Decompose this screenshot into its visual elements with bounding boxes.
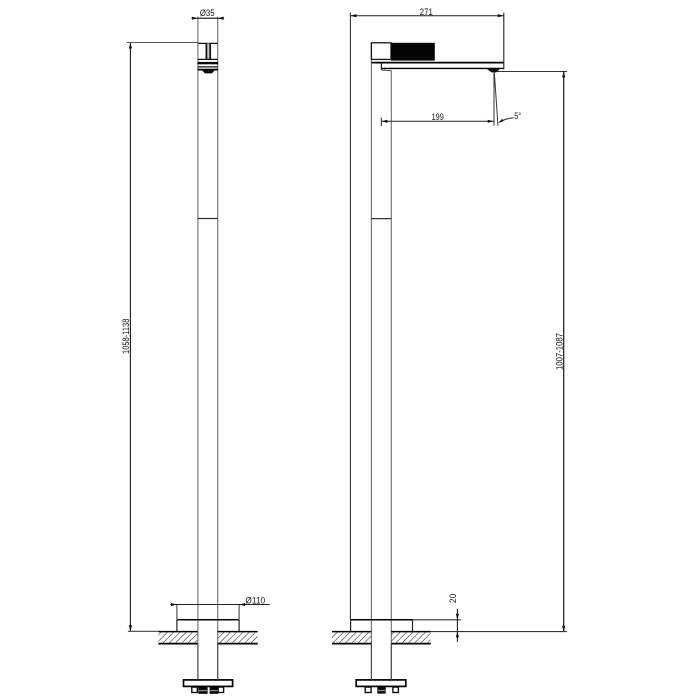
svg-text:199: 199	[432, 112, 444, 122]
svg-text:Ø110: Ø110	[245, 595, 265, 605]
svg-text:1007-1087: 1007-1087	[554, 333, 564, 370]
svg-text:1058-1138: 1058-1138	[121, 319, 131, 354]
svg-text:Ø35: Ø35	[200, 8, 215, 18]
svg-text:20: 20	[448, 594, 458, 603]
svg-text:271: 271	[420, 7, 433, 17]
svg-text:5°: 5°	[514, 111, 521, 121]
